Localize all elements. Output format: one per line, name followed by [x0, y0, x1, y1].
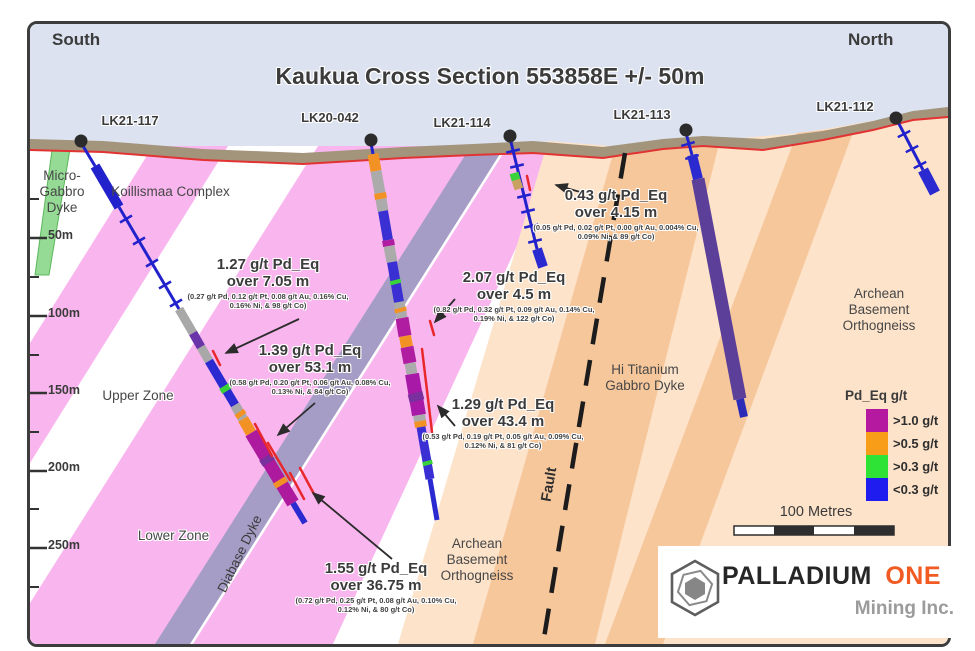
assay-grade: 2.07 g/t Pd_Eq	[426, 269, 602, 286]
assay-annotation-6: 1.55 g/t Pd_Eq over 36.75 m (0.72 g/t Pd…	[288, 560, 464, 615]
assay-detail: (0.53 g/t Pd, 0.19 g/t Pt, 0.05 g/t Au, …	[415, 432, 591, 452]
assay-detail: (0.82 g/t Pd, 0.32 g/t Pt, 0.09 g/t Au, …	[426, 305, 602, 325]
assay-interval: over 4.15 m	[528, 204, 704, 221]
assay-grade: 1.27 g/t Pd_Eq	[180, 256, 356, 273]
logo-subtitle: Mining Inc.	[722, 598, 954, 620]
assay-detail: (0.27 g/t Pd, 0.12 g/t Pt, 0.08 g/t Au, …	[180, 292, 356, 312]
legend-label-high: >1.0 g/t	[893, 409, 938, 432]
palladium-one-logo-icon	[666, 557, 724, 627]
upper-zone-label: Upper Zone	[93, 388, 183, 404]
legend-label-trace: <0.3 g/t	[893, 478, 938, 501]
assay-annotation-4: 2.07 g/t Pd_Eq over 4.5 m (0.82 g/t Pd, …	[426, 269, 602, 324]
depth-250m: 250m	[48, 538, 80, 553]
legend-title: Pd_Eq g/t	[845, 388, 907, 404]
logo-name-accent: ONE	[885, 562, 941, 590]
legend-label-med: >0.5 g/t	[893, 432, 938, 455]
palladium-one-logo: PALLADIUM ONE Mining Inc.	[658, 546, 962, 638]
scale-bar-graphic	[734, 526, 894, 535]
hole-label-LK21-117: LK21-117	[88, 113, 172, 128]
legend-label-low: >0.3 g/t	[893, 455, 938, 478]
koillismaa-complex-label: Koillismaa Complex	[108, 184, 233, 200]
hi-ti-gabbro-dyke-label: Hi Titanium Gabbro Dyke	[603, 362, 687, 394]
north-label: North	[848, 30, 893, 50]
collar-LK21-114	[504, 130, 517, 143]
assay-grade: 1.55 g/t Pd_Eq	[288, 560, 464, 577]
assay-grade: 1.39 g/t Pd_Eq	[222, 342, 398, 359]
micro-gabbro-dyke-label: Micro-Gabbro Dyke	[31, 168, 93, 216]
hole-label-LK21-113: LK21-113	[600, 107, 684, 122]
hole-label-LK21-112: LK21-112	[803, 99, 887, 114]
collar-LK20-042	[365, 134, 378, 147]
depth-200m: 200m	[48, 460, 80, 475]
scale-bar-label: 100 Metres	[746, 504, 886, 521]
assay-annotation-2: 1.39 g/t Pd_Eq over 53.1 m (0.58 g/t Pd,…	[222, 342, 398, 397]
depth-150m: 150m	[48, 383, 80, 398]
assay-annotation-1: 1.27 g/t Pd_Eq over 7.05 m (0.27 g/t Pd,…	[180, 256, 356, 311]
assay-detail: (0.72 g/t Pd, 0.25 g/t Pt, 0.08 g/t Au, …	[288, 596, 464, 616]
collar-LK21-112	[890, 112, 903, 125]
legend-chip-high	[866, 409, 888, 432]
hole-label-LK21-114: LK21-114	[420, 115, 504, 130]
assay-detail: (0.58 g/t Pd, 0.20 g/t Pt, 0.06 g/t Au, …	[222, 378, 398, 398]
lower-zone-label: Lower Zone	[126, 528, 221, 544]
archean-basement-label-east: Archean Basement Orthogneiss	[830, 286, 928, 334]
assay-annotation-3: 0.43 g/t Pd_Eq over 4.15 m (0.05 g/t Pd,…	[528, 187, 704, 242]
legend-chip-low	[866, 455, 888, 478]
depth-100m: 100m	[48, 306, 80, 321]
assay-interval: over 43.4 m	[415, 413, 591, 430]
cross-section-figure: Kaukua Cross Section 553858E +/- 50m Sou…	[0, 0, 975, 651]
legend-chip-trace	[866, 478, 888, 501]
legend-chip-med	[866, 432, 888, 455]
depth-50m: 50m	[48, 228, 73, 243]
hole-label-LK20-042: LK20-042	[288, 110, 372, 125]
assay-grade: 1.29 g/t Pd_Eq	[415, 396, 591, 413]
collar-LK21-117	[75, 135, 88, 148]
assay-detail: (0.05 g/t Pd, 0.02 g/t Pt, 0.00 g/t Au, …	[528, 223, 704, 243]
assay-interval: over 7.05 m	[180, 273, 356, 290]
assay-annotation-5: 1.29 g/t Pd_Eq over 43.4 m (0.53 g/t Pd,…	[415, 396, 591, 451]
assay-interval: over 4.5 m	[426, 286, 602, 303]
assay-interval: over 53.1 m	[222, 359, 398, 376]
figure-title: Kaukua Cross Section 553858E +/- 50m	[210, 63, 770, 90]
south-label: South	[52, 30, 100, 50]
collar-LK21-113	[680, 124, 693, 137]
logo-wordmark: PALLADIUM ONE	[722, 562, 954, 591]
assay-interval: over 36.75 m	[288, 577, 464, 594]
assay-grade: 0.43 g/t Pd_Eq	[528, 187, 704, 204]
logo-name-primary: PALLADIUM	[722, 562, 872, 590]
